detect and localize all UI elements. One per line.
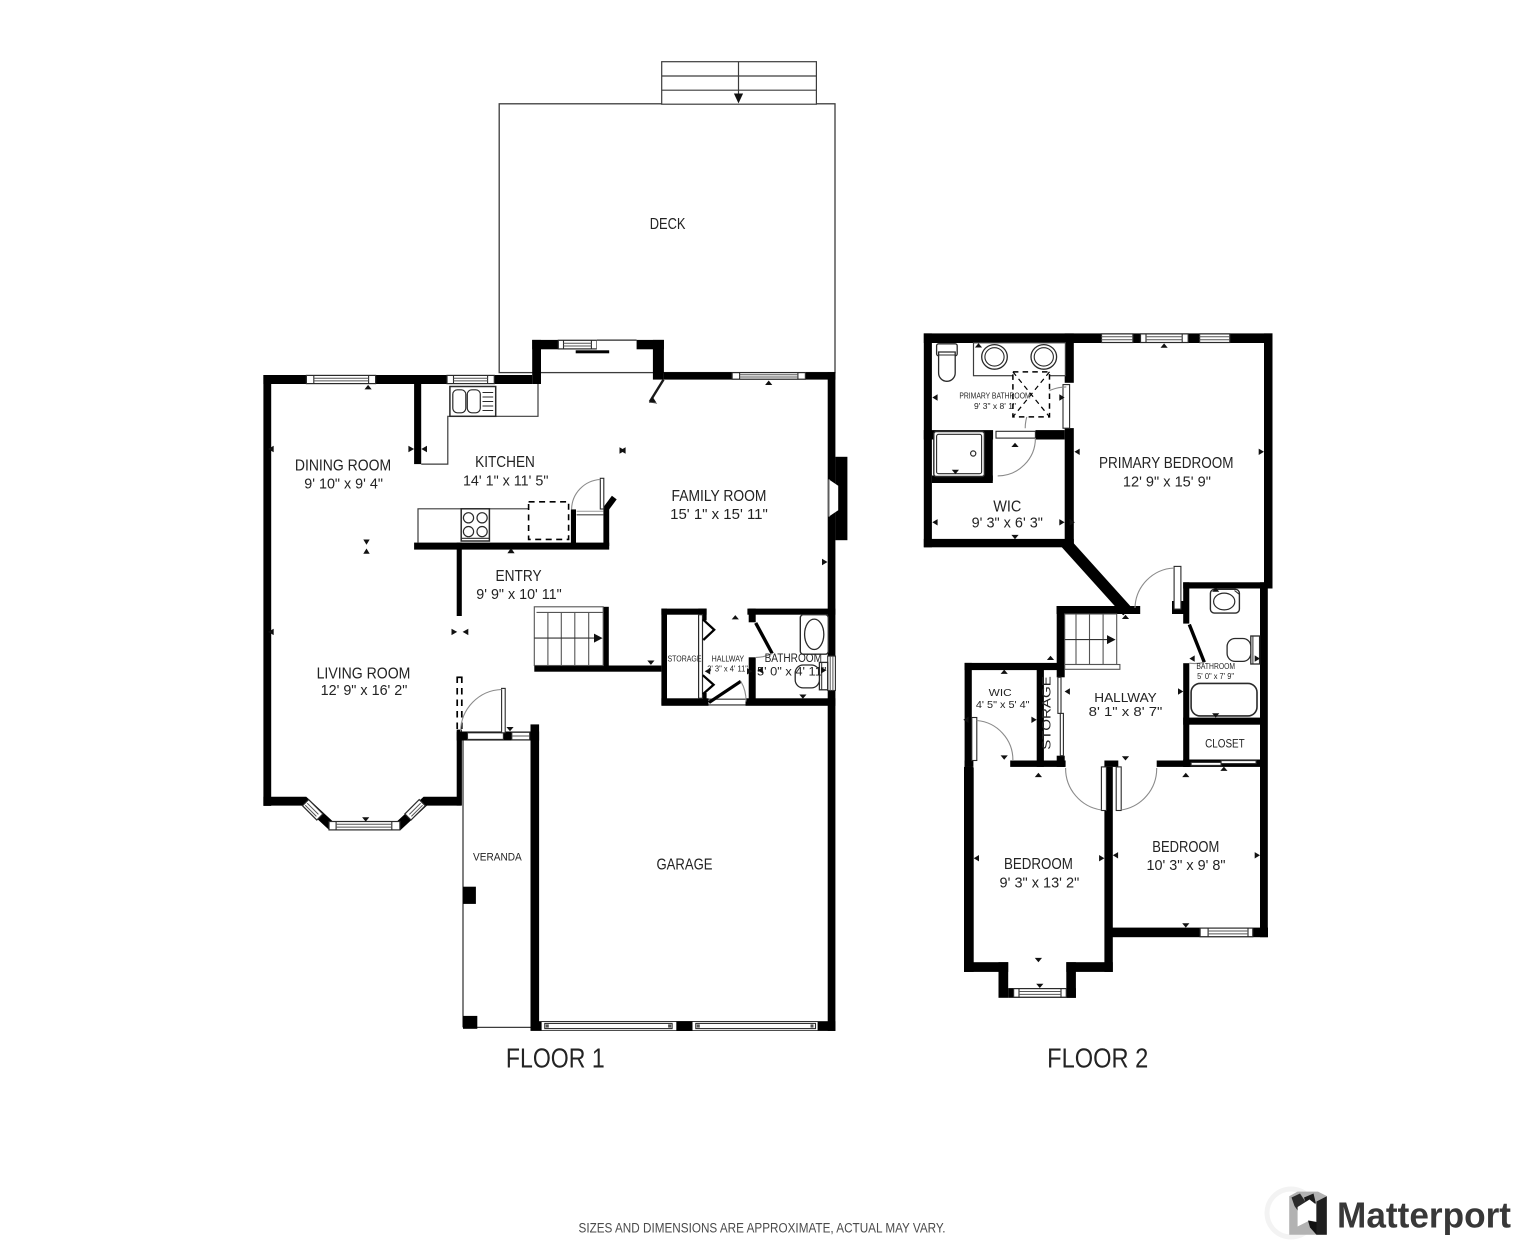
svg-text:FLOOR 2: FLOOR 2: [1047, 1043, 1148, 1074]
svg-text:GARAGE: GARAGE: [657, 857, 713, 874]
svg-text:BEDROOM: BEDROOM: [1004, 856, 1073, 873]
svg-text:9' 10" x 9' 4": 9' 10" x 9' 4": [304, 476, 383, 493]
svg-text:4' 5" x 5' 4": 4' 5" x 5' 4": [976, 699, 1030, 711]
svg-text:5' 0" x 7' 9": 5' 0" x 7' 9": [1197, 671, 1234, 681]
svg-text:WIC: WIC: [989, 687, 1012, 699]
svg-text:LIVING ROOM: LIVING ROOM: [317, 666, 411, 683]
svg-text:DINING ROOM: DINING ROOM: [295, 458, 391, 475]
svg-text:SIZES AND DIMENSIONS ARE APPRO: SIZES AND DIMENSIONS ARE APPROXIMATE, AC…: [579, 1221, 946, 1236]
svg-text:STORAGE: STORAGE: [668, 654, 702, 664]
svg-text:STORAGE: STORAGE: [1041, 676, 1053, 750]
svg-text:8' 1" x 8' 7": 8' 1" x 8' 7": [1089, 705, 1163, 719]
svg-text:DECK: DECK: [650, 216, 686, 233]
svg-text:5' 0" x 4' 11": 5' 0" x 4' 11": [757, 667, 826, 679]
svg-text:14' 1" x 11' 5": 14' 1" x 11' 5": [463, 473, 549, 490]
svg-text:WIC: WIC: [993, 499, 1021, 516]
svg-text:12' 9" x 15' 9": 12' 9" x 15' 9": [1123, 474, 1211, 491]
svg-text:Matterport: Matterport: [1337, 1195, 1511, 1236]
svg-text:PRIMARY BATHROOM: PRIMARY BATHROOM: [959, 391, 1030, 401]
svg-text:KITCHEN: KITCHEN: [475, 454, 535, 471]
svg-text:HALLWAY: HALLWAY: [1094, 691, 1157, 705]
svg-text:15' 1" x 15' 11": 15' 1" x 15' 11": [670, 506, 768, 523]
svg-text:ENTRY: ENTRY: [496, 568, 542, 585]
svg-text:10' 3" x 9' 8": 10' 3" x 9' 8": [1147, 857, 1226, 874]
svg-text:12' 9" x 16' 2": 12' 9" x 16' 2": [321, 682, 408, 699]
svg-text:BEDROOM: BEDROOM: [1152, 839, 1219, 856]
svg-text:FAMILY ROOM: FAMILY ROOM: [672, 488, 767, 505]
svg-text:VERANDA: VERANDA: [473, 852, 522, 864]
svg-text:9' 3" x 8' 1": 9' 3" x 8' 1": [974, 401, 1016, 411]
svg-text:9' 3" x 6' 3": 9' 3" x 6' 3": [972, 515, 1043, 532]
svg-text:3' 3" x 4' 11": 3' 3" x 4' 11": [707, 664, 748, 674]
svg-text:BATHROOM: BATHROOM: [1196, 661, 1235, 671]
svg-text:BATHROOM: BATHROOM: [765, 653, 822, 665]
svg-text:HALLWAY: HALLWAY: [712, 654, 745, 664]
svg-text:PRIMARY BEDROOM: PRIMARY BEDROOM: [1099, 455, 1234, 472]
svg-text:9' 3" x 13' 2": 9' 3" x 13' 2": [1000, 875, 1080, 892]
svg-text:CLOSET: CLOSET: [1205, 737, 1245, 751]
svg-text:FLOOR 1: FLOOR 1: [506, 1043, 605, 1074]
svg-text:9' 9" x 10' 11": 9' 9" x 10' 11": [476, 586, 561, 603]
